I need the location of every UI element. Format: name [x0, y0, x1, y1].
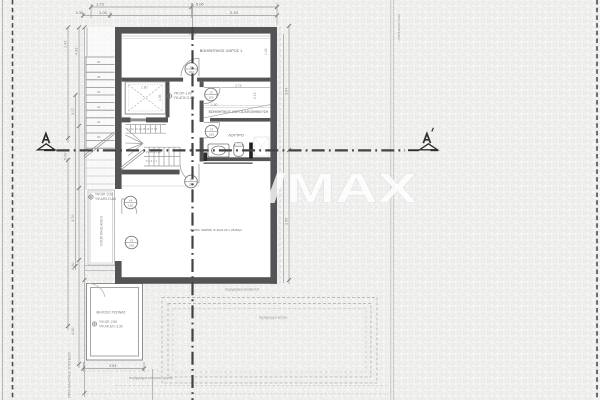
svg-text:Υ2: Υ2	[209, 90, 213, 94]
svg-text:150: 150	[209, 132, 214, 136]
svg-text:26: 26	[97, 90, 101, 94]
svg-text:2.75: 2.75	[235, 84, 242, 88]
svg-text:περίφραγμα υπόγειου χώρου: περίφραγμα υπόγειου χώρου	[129, 376, 173, 380]
svg-text:22: 22	[97, 120, 101, 124]
svg-text:ΒΟΗΘΗΤΙΚΟΣ ΧΩΡΟΣ 1: ΒΟΗΘΗΤΙΚΟΣ ΧΩΡΟΣ 1	[200, 49, 242, 53]
svg-text:περίφραγμα κήπου: περίφραγμα κήπου	[259, 316, 288, 320]
svg-text:περιμετρικό κανάλι ΚΑ: περιμετρικό κανάλι ΚΑ	[225, 288, 259, 292]
svg-text:1.03: 1.03	[99, 10, 108, 15]
svg-text:3.64: 3.64	[285, 88, 289, 95]
svg-text:4.33: 4.33	[75, 48, 79, 55]
svg-text:5.00: 5.00	[196, 2, 205, 7]
svg-text:2.19: 2.19	[230, 10, 239, 15]
svg-text:3.95: 3.95	[285, 218, 289, 225]
svg-text:ΜΗΧ/ΣΙΟ ΠΙΣΙΝΑΣ: ΜΗΧ/ΣΙΟ ΠΙΣΙΝΑΣ	[96, 311, 126, 315]
svg-text:30: 30	[97, 60, 101, 64]
svg-text:1.73: 1.73	[96, 2, 105, 7]
svg-text:150: 150	[129, 243, 134, 247]
svg-text:COUR ANGLAISES: COUR ANGLAISES	[100, 215, 104, 246]
svg-text:11 12 13 14 15 16 17 18: 11 12 13 14 15 16 17 18	[127, 127, 158, 131]
svg-text:Υ4: Υ4	[129, 198, 133, 202]
svg-text:5 4 3 2 1: 5 4 3 2 1	[146, 159, 157, 163]
svg-text:1.44: 1.44	[64, 41, 68, 48]
svg-text:ΒΟΗΘΗΤΙΚΟΣ ΧΩΡΟΣ/ΑΠΟΘΗΚΕΥΣΗ: ΒΟΗΘΗΤΙΚΟΣ ΧΩΡΟΣ/ΑΠΟΘΗΚΕΥΣΗ	[209, 110, 269, 114]
svg-text:24: 24	[97, 105, 101, 109]
svg-text:ΥΨ.ΑΠ.ΕΠ.-3.30: ΥΨ.ΑΠ.ΕΠ.-3.30	[99, 325, 123, 329]
svg-text:1.80: 1.80	[141, 85, 148, 89]
svg-text:ΛΟΥΤΡΟ: ΛΟΥΤΡΟ	[228, 133, 244, 137]
svg-text:2.15: 2.15	[253, 92, 257, 99]
svg-text:Υ5: Υ5	[130, 238, 134, 242]
svg-text:150: 150	[189, 70, 194, 74]
svg-text:ΥΨ.ΟΡ.-1.90: ΥΨ.ΟΡ.-1.90	[174, 92, 192, 96]
svg-text:20: 20	[97, 135, 101, 139]
svg-text:ΒΟΗΘ. ΧΩΡΟΣ: 6.10×4.23 = 25.80: ΒΟΗΘ. ΧΩΡΟΣ: 6.10×4.23 = 25.80μ²	[190, 228, 241, 232]
svg-text:150: 150	[208, 95, 213, 99]
svg-text:MAX: MAX	[286, 165, 417, 212]
svg-text:0.40: 0.40	[71, 263, 75, 270]
svg-text:150: 150	[128, 203, 133, 207]
svg-text:1.80: 1.80	[211, 103, 218, 107]
svg-text:Υ3: Υ3	[210, 127, 214, 131]
svg-text:3.70: 3.70	[71, 215, 75, 222]
svg-text:1.45: 1.45	[264, 48, 268, 55]
svg-text:5.00: 5.00	[64, 153, 68, 160]
svg-text:3.17: 3.17	[71, 108, 75, 115]
svg-text:ΟΡΙΟ ΟΙΚΟΠΕΔΟΥ: ΟΡΙΟ ΟΙΚΟΠΕΔΟΥ	[397, 14, 401, 41]
svg-text:1.95: 1.95	[158, 94, 162, 101]
svg-text:ΟΡΙΟ ΚΑΛΥΨΗΣ ΥΠΟΓΕΙΟΥ: ΟΡΙΟ ΚΑΛΥΨΗΣ ΥΠΟΓΕΙΟΥ	[68, 351, 72, 398]
svg-text:ΥΨ.ΔΠΧ.Ο.ΔΟ: ΥΨ.ΔΠΧ.Ο.ΔΟ	[95, 197, 117, 201]
svg-text:0.30: 0.30	[76, 11, 83, 15]
svg-text:ΥΨ.ΟΡ.-2.90: ΥΨ.ΟΡ.-2.90	[99, 320, 117, 324]
svg-text:28: 28	[97, 75, 101, 79]
svg-text:4.40: 4.40	[71, 328, 75, 335]
svg-text:ΥΨ.ΟΡ.-2.90: ΥΨ.ΟΡ.-2.90	[95, 193, 113, 197]
svg-text:2.94: 2.94	[109, 364, 116, 368]
